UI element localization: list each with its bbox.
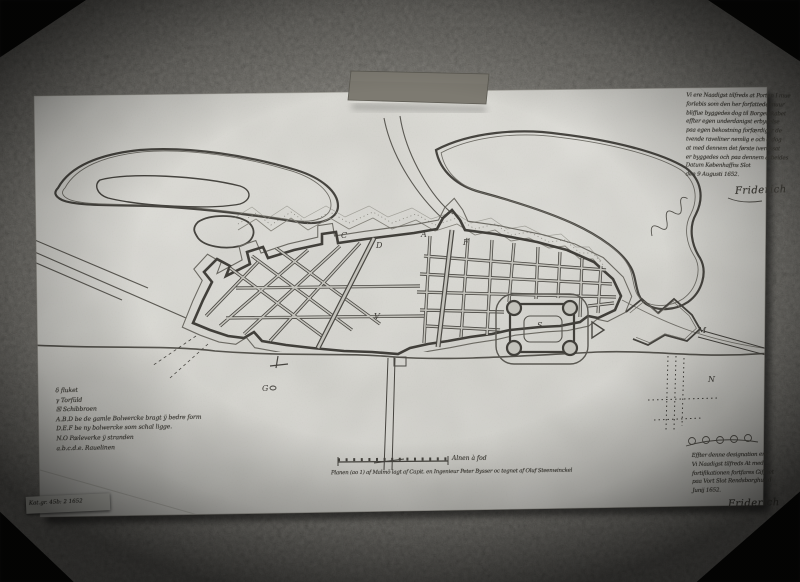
catalog-number: Kat.gr. 45b: 2 1652 <box>29 499 83 507</box>
plan-letter: N <box>708 375 715 384</box>
map-legend: δ fluket γ Torfüld ☒ Schibbroen A.B.D be… <box>55 384 202 454</box>
photo-of-fortification-map: Vi ere Naadigst tilfreds at Porten I mue… <box>0 0 800 582</box>
signature-friderich-top: Friderich <box>735 185 787 197</box>
signature-friderich-bottom: Friderich <box>728 498 780 510</box>
note-line: forlebis som den her forfattede muur <box>686 100 798 110</box>
plan-letter: A <box>421 230 427 239</box>
royal-note-bottom-right: Effter denne designation ere Vi Naadigst… <box>692 450 800 496</box>
royal-note-top-right: Vi ere Naadigst tilfreds at Porten I mue… <box>686 92 799 181</box>
plan-letter-citadel: S <box>537 321 542 330</box>
plan-letter: M <box>698 326 706 335</box>
plan-letter: D <box>376 241 382 250</box>
note-line: at med dennem det første ivercksat <box>686 144 798 154</box>
scale-bar-label: Alnen à fod <box>452 456 487 462</box>
map-drawing-scene <box>0 0 800 582</box>
note-line: Junij 1652. <box>692 485 800 496</box>
plan-letter: V <box>374 312 380 321</box>
plan-letter: C <box>341 231 347 240</box>
plan-letter: F <box>463 238 469 247</box>
note-line: den 9 Augusti 1652. <box>686 171 798 181</box>
plan-letter: G <box>262 384 268 393</box>
